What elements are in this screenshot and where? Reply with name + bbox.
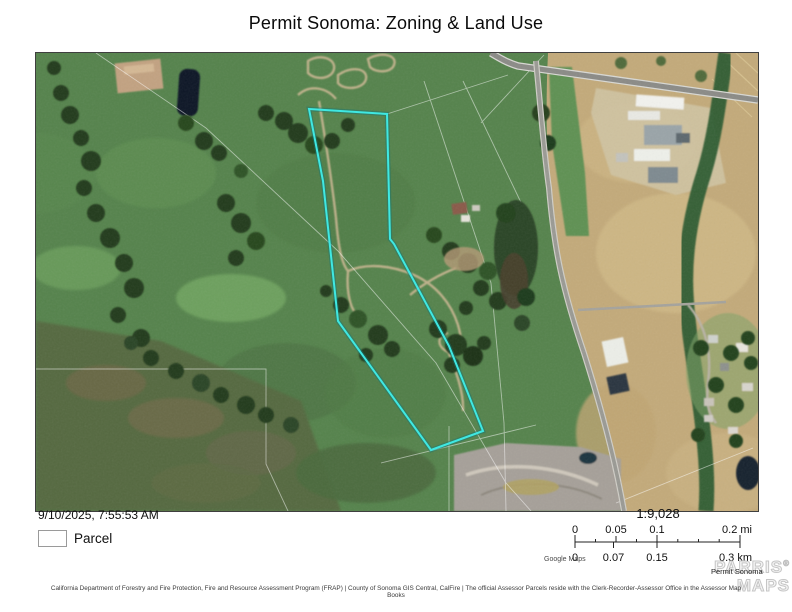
mi-tick-2: 0.1 bbox=[649, 524, 664, 536]
map-viewport bbox=[35, 52, 759, 512]
basemap-credit: Google Maps bbox=[544, 556, 586, 563]
mi-tick-1: 0.05 bbox=[605, 524, 626, 536]
print-layout-page: Permit Sonoma: Zoning & Land Use bbox=[0, 0, 792, 612]
registered-mark: ® bbox=[783, 559, 790, 568]
mi-tick-0: 0 bbox=[572, 524, 578, 536]
scale-ratio: 1:9,028 bbox=[636, 506, 679, 521]
parcel-legend-swatch bbox=[38, 530, 67, 547]
km-tick-1: 0.07 bbox=[603, 552, 624, 564]
attribution-text: California Department of Forestry and Fi… bbox=[46, 585, 746, 599]
km-tick-2: 0.15 bbox=[646, 552, 667, 564]
permit-sonoma-label: Permit Sonoma bbox=[711, 567, 763, 576]
map-timestamp: 9/10/2025, 7:55:53 AM bbox=[38, 508, 159, 522]
parcel-legend-label: Parcel bbox=[74, 531, 112, 546]
page-title: Permit Sonoma: Zoning & Land Use bbox=[0, 13, 792, 34]
mi-tick-3: 0.2 mi bbox=[722, 524, 752, 536]
legend: Parcel bbox=[38, 530, 112, 547]
satellite-basemap bbox=[36, 53, 758, 511]
